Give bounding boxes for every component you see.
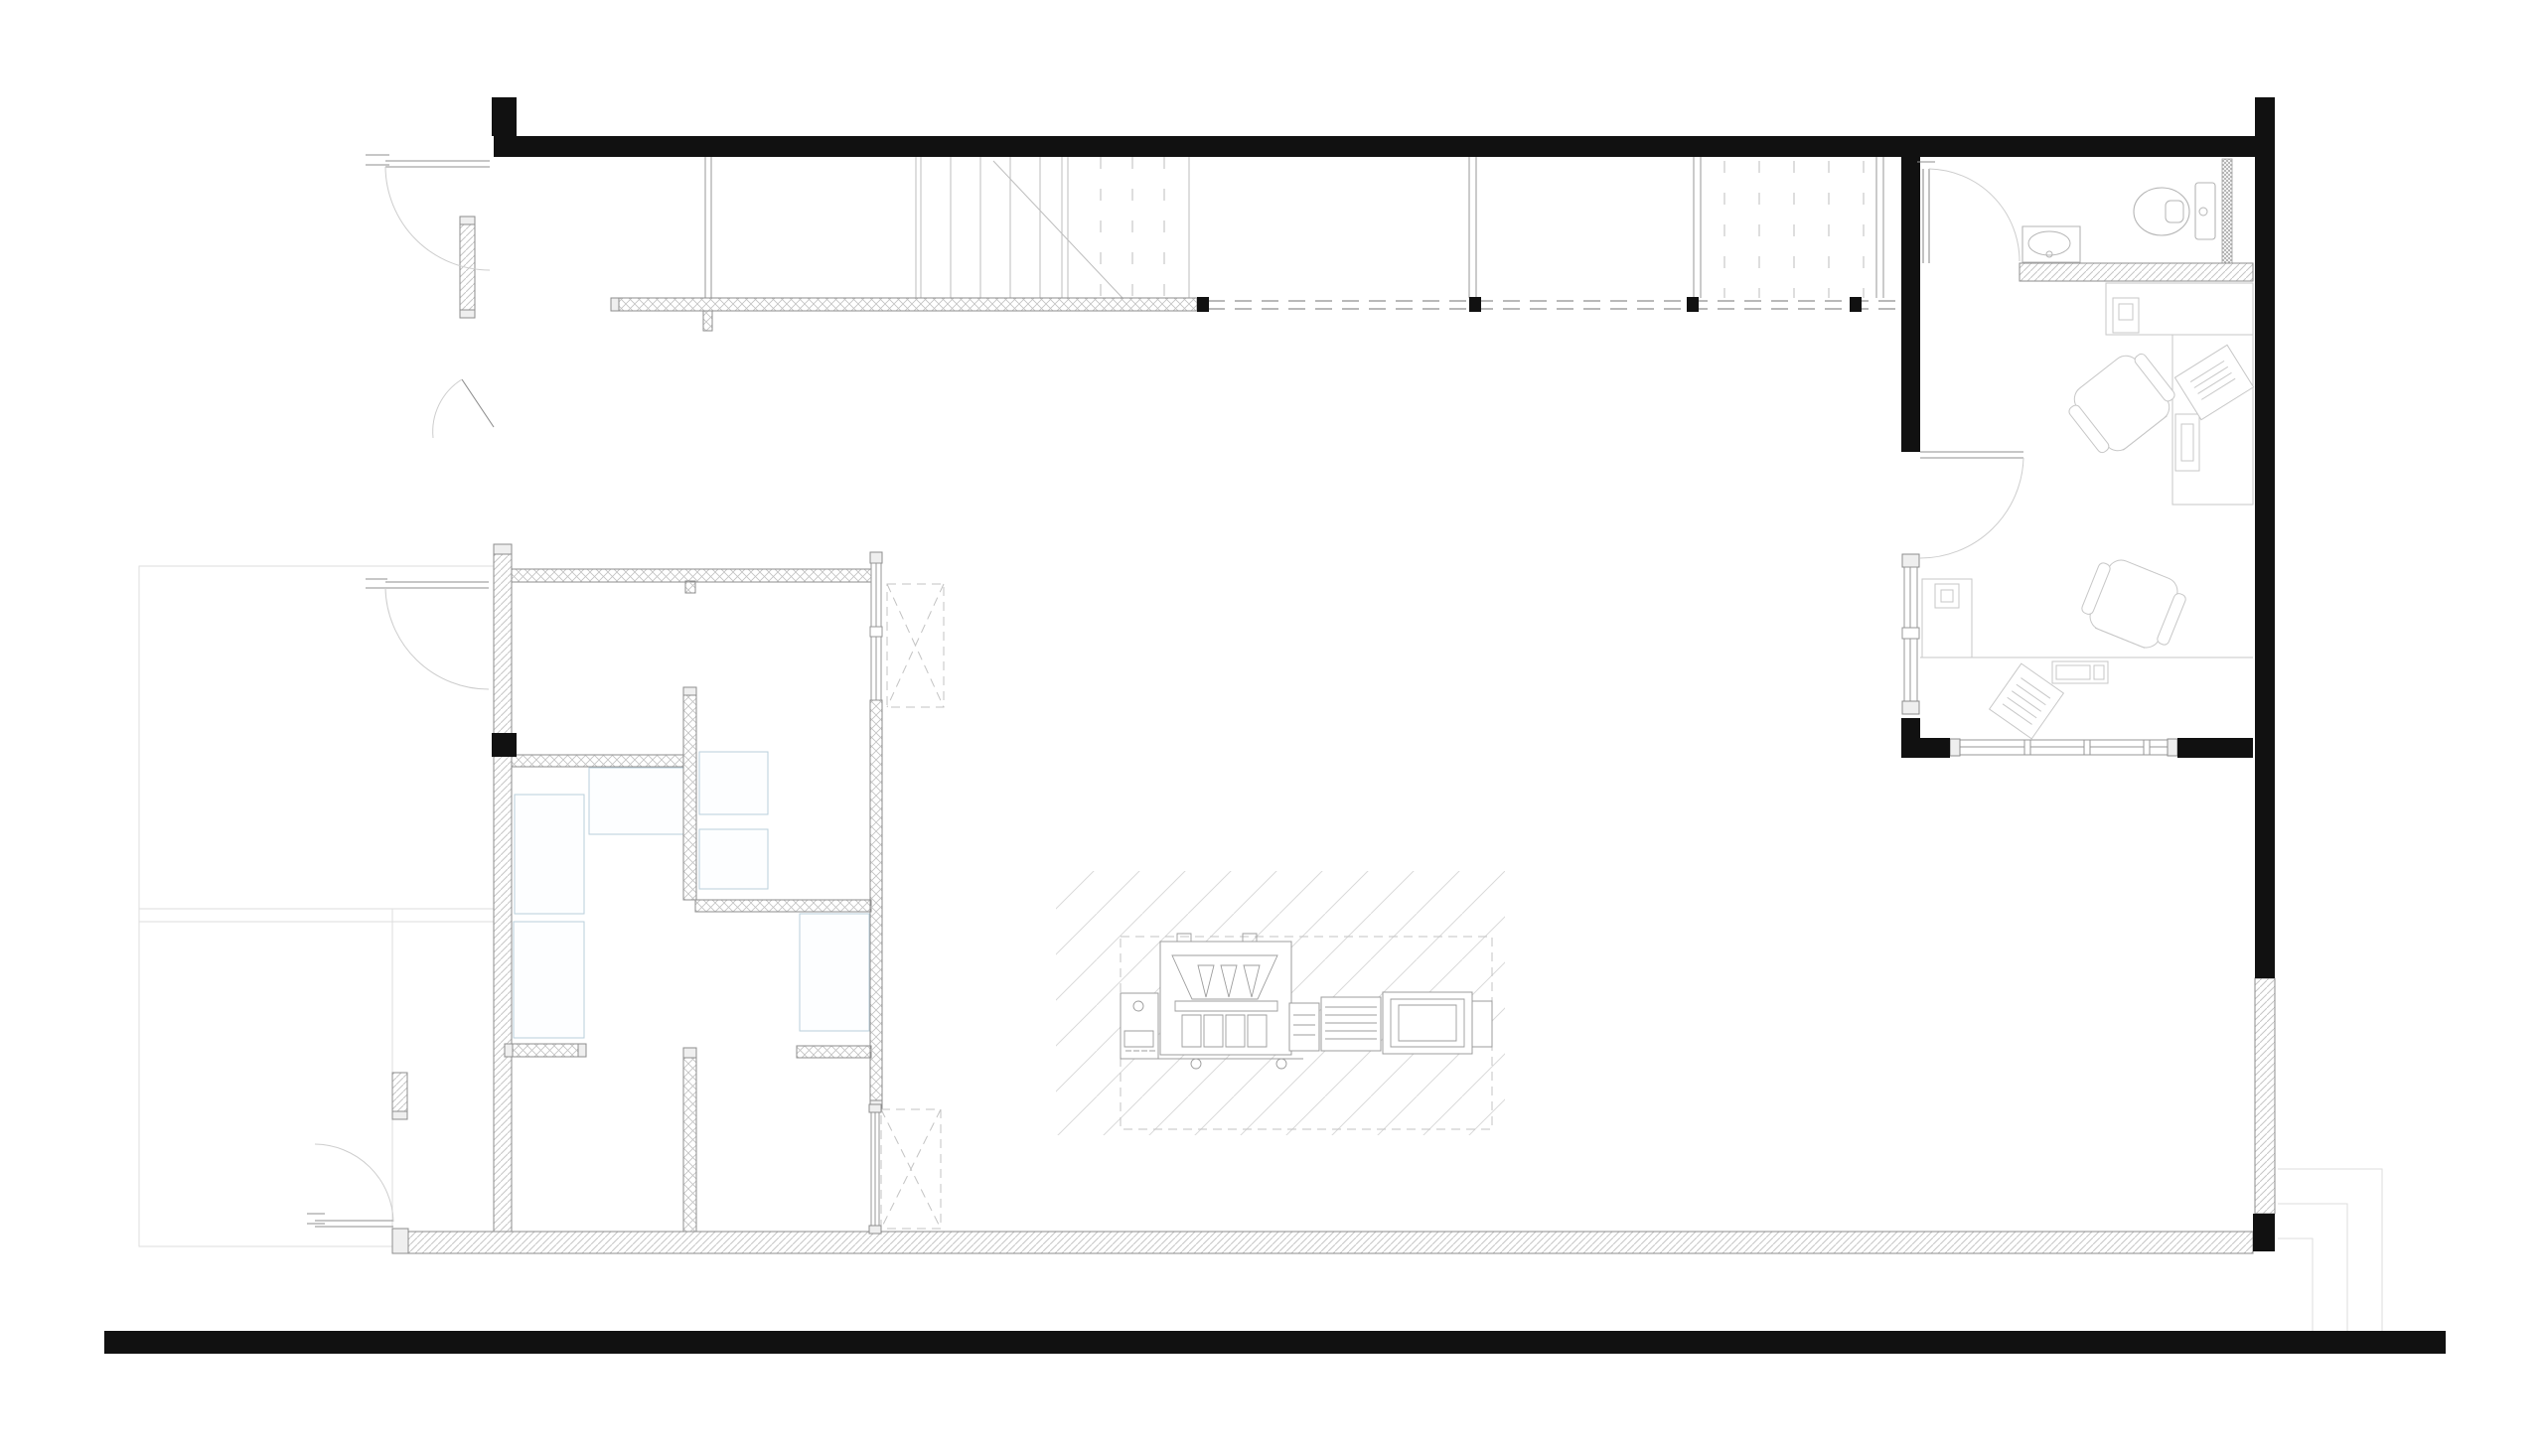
floor-plan-canvas — [0, 0, 2545, 1456]
top-right-pier — [2255, 97, 2275, 136]
office-keyboard — [2052, 661, 2108, 683]
hall-wall — [611, 298, 1197, 311]
wall-f-cap-east — [578, 1044, 586, 1057]
office-pc-upper — [2113, 298, 2139, 333]
left-exterior-wall — [494, 544, 512, 1232]
adjacent-area-upper — [139, 566, 494, 909]
office-wall-lower — [1901, 718, 1920, 758]
storage-wall-e — [683, 1048, 696, 1232]
southwest-door-arc — [315, 1144, 393, 1222]
storage-item-1 — [515, 795, 584, 914]
storage-wall-f — [505, 1044, 586, 1057]
storage-item-2 — [514, 922, 584, 1038]
vestibule-door-arc — [433, 379, 462, 438]
left-wall-cap — [494, 544, 512, 554]
shaft-lower-diagonals — [881, 1109, 941, 1229]
entry-door-top-leaf — [385, 161, 490, 167]
wall-e-cap — [683, 1048, 696, 1058]
wall-a-cap — [683, 687, 696, 695]
side-door-leaf — [385, 582, 489, 588]
corridor-connector-3 — [1687, 297, 1699, 312]
shower-screen — [2222, 159, 2232, 263]
office-window-south-mullion-1 — [2024, 740, 2030, 755]
sw-stub-cap — [392, 1111, 407, 1119]
floor-plan-svg — [0, 0, 2545, 1456]
southwest-door-leaf — [315, 1221, 393, 1227]
office-window-west-transom — [1902, 628, 1919, 639]
office-chair-lower — [2077, 552, 2191, 655]
storage-window-lower-cap-top — [869, 1104, 881, 1112]
storage-wall-g — [797, 1046, 871, 1058]
storage-item-3 — [589, 768, 683, 834]
hall-wall-stub — [703, 311, 712, 331]
side-door-arc — [385, 588, 489, 689]
side-door-hinge — [366, 579, 387, 588]
toilet-tank — [2195, 183, 2215, 239]
machine-control-cabinet — [1121, 993, 1158, 1059]
storage-wall-top-stub — [685, 581, 695, 593]
top-wall — [494, 136, 2275, 157]
office-window-south-cap-east — [2168, 739, 2177, 756]
vestibule-cap-top — [460, 217, 475, 224]
southwest-door-hinge — [307, 1214, 325, 1224]
storage-item-6 — [800, 914, 869, 1031]
top-left-pier — [492, 97, 517, 136]
office-chair-upper — [2061, 345, 2182, 463]
wall-d-cap-top — [870, 552, 882, 563]
storage-window-upper-transom — [870, 627, 882, 637]
toilet-bowl — [2134, 188, 2189, 235]
office-window-south-cap-west — [1950, 739, 1960, 756]
vestibule-door-leaf — [462, 379, 494, 427]
vestibule-wall — [460, 217, 475, 318]
stair-run-line — [993, 161, 1123, 298]
office-pc-lower — [1935, 584, 1959, 608]
structural-column — [492, 733, 517, 757]
machine-conveyor — [1321, 997, 1381, 1051]
machine-outlet — [1472, 1001, 1492, 1047]
south-corner-cap — [392, 1229, 408, 1253]
bathroom-door-arc — [1929, 169, 2020, 261]
right-wall-lower — [2255, 978, 2275, 1214]
office-window-south-mullion-2 — [2084, 740, 2090, 755]
storage-wall-top — [512, 569, 871, 582]
storage-wall-bottom — [695, 900, 871, 912]
hall-wall-cap — [611, 298, 619, 311]
bathroom-door-leaf — [1923, 169, 1929, 263]
bathroom-wall — [2020, 263, 2253, 281]
chair-seat — [2069, 351, 2175, 457]
office-window-west-cap-top — [1902, 554, 1919, 567]
corridor-connector-2 — [1469, 297, 1481, 312]
office-sill-west — [1920, 738, 1950, 758]
shaft-upper-diagonals — [887, 584, 944, 707]
storage-item-4 — [699, 752, 768, 814]
machine-connector — [1289, 1003, 1319, 1051]
storage-wall-a — [683, 695, 696, 900]
office-door-leaf — [1920, 452, 2023, 458]
exterior-step-1 — [2278, 1169, 2382, 1331]
office-window-south-mullion-3 — [2144, 740, 2150, 755]
plan-layer — [104, 97, 2446, 1354]
machine-press — [1383, 992, 1472, 1054]
office-door-arc — [1920, 458, 2023, 558]
storage-item-5 — [699, 829, 768, 889]
office-sill-east — [2177, 738, 2253, 758]
adjacent-area-lower — [139, 909, 392, 1246]
wall-f-cap-west — [505, 1044, 513, 1057]
storage-window-lower-cap-bottom — [869, 1226, 881, 1234]
right-wall — [2255, 136, 2275, 978]
south-wall — [392, 1232, 2253, 1253]
corridor-connector-1 — [1197, 297, 1209, 312]
office-window-west-cap-bottom — [1902, 701, 1919, 714]
ground-line — [104, 1331, 2446, 1354]
entry-door-top-hinge — [366, 155, 389, 165]
exterior-step-3 — [2278, 1238, 2313, 1331]
vestibule-cap-bottom — [460, 310, 475, 318]
office-wall-upper — [1901, 157, 1920, 452]
corridor-connector-4 — [1850, 297, 1862, 312]
storage-wall-d — [870, 700, 882, 1104]
office-monitor — [2175, 414, 2199, 471]
right-wall-foot — [2253, 1214, 2275, 1251]
storage-wall-mid — [512, 755, 683, 767]
